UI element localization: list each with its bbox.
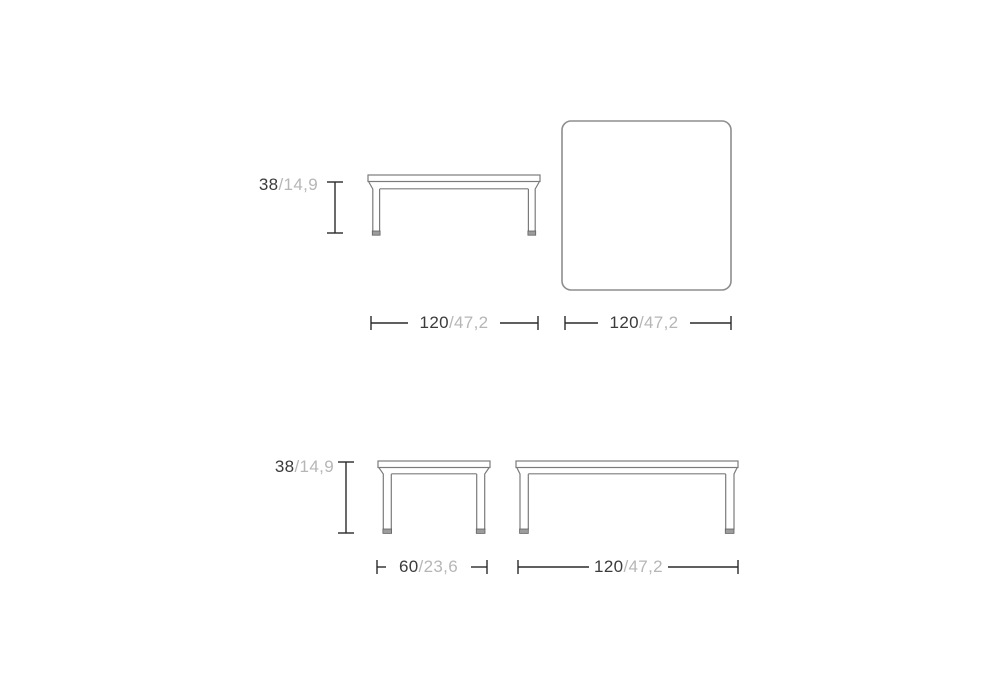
width-dimension-label-front-120-top: 120/47,2: [408, 313, 500, 333]
dimension-value-inches: /47,2: [623, 557, 663, 576]
table-foot: [372, 231, 380, 235]
width-dimension-label-60: 60/23,6: [386, 557, 471, 577]
dimension-value-cm: 120: [420, 313, 449, 332]
height-dimension-label-top: 38/14,9: [228, 175, 318, 195]
dimension-value-inches: /23,6: [419, 557, 459, 576]
dimension-value-inches: /47,2: [449, 313, 489, 332]
table-foot: [476, 529, 485, 533]
height-dimension-line-top: [327, 182, 343, 233]
dimension-value-cm: 60: [399, 557, 419, 576]
width-dimension-label-120-bottom: 120/47,2: [589, 557, 668, 577]
dimension-value-cm: 120: [610, 313, 639, 332]
coffee-table-front-view-120-top: [368, 175, 540, 235]
height-dimension-line-bottom: [338, 462, 354, 533]
dimension-value-inches: /47,2: [639, 313, 679, 332]
line-drawing-layer: [0, 0, 1000, 700]
coffee-table-front-view-120-bottom: [516, 461, 738, 533]
height-dimension-label-bottom: 38/14,9: [244, 457, 334, 477]
table-foot: [520, 529, 529, 533]
coffee-table-front-view-60: [378, 461, 490, 533]
dimension-value-inches: /14,9: [278, 175, 318, 194]
dimension-value-inches: /14,9: [294, 457, 334, 476]
dimension-value-cm: 38: [259, 175, 279, 194]
product-dimension-diagram: 38/14,9 120/47,2 120/47,2 38/14,9 60/23,…: [0, 0, 1000, 700]
table-foot: [528, 231, 536, 235]
dimension-value-cm: 38: [275, 457, 295, 476]
table-foot: [383, 529, 392, 533]
coffee-table-top-view-120: [562, 121, 731, 290]
table-foot: [725, 529, 734, 533]
width-dimension-label-plan-120: 120/47,2: [598, 313, 690, 333]
dimension-value-cm: 120: [594, 557, 623, 576]
